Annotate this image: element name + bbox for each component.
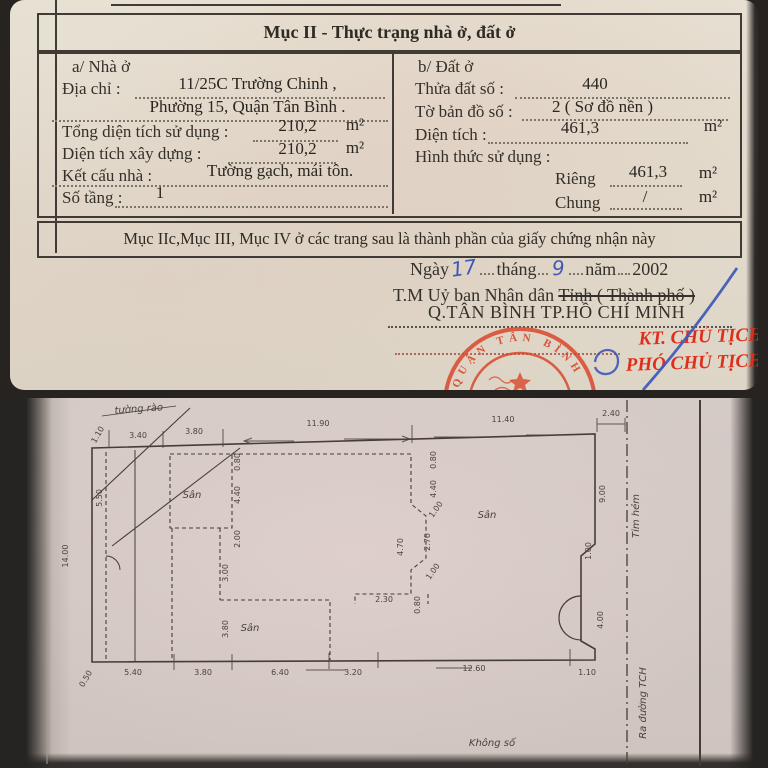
room-b-outline: [172, 528, 330, 660]
site-plan-photo: 1.10 3.40 3.80 11.90 11.40 2.40 0.50 5.4…: [6, 398, 762, 768]
dotted-line: [480, 261, 494, 275]
total-area-label: Tổng diện tích sử dụng :: [62, 122, 228, 142]
private-unit: m²: [693, 163, 723, 183]
dim-inner-4: 3.80: [221, 620, 230, 638]
site-plan-drawing: 1.10 3.40 3.80 11.90 11.40 2.40 0.50 5.4…: [6, 398, 762, 768]
use-form-label: Hình thức sử dụng :: [415, 147, 551, 167]
dim-top-4: 11.40: [492, 415, 515, 424]
dim-inner-8: 4.70: [396, 538, 405, 556]
address-label: Địa chỉ :: [62, 79, 121, 99]
road-out-label: Ra đường TCH: [637, 667, 649, 739]
private-label: Riêng: [555, 169, 596, 189]
dotted-line: [488, 140, 688, 144]
dotted-line: [538, 261, 548, 275]
dim-bottom-3: 6.40: [271, 668, 289, 677]
signature-stroke: [643, 268, 737, 390]
dotted-line: [610, 206, 682, 210]
floors-label: Số tầng :: [62, 188, 122, 208]
parcel-value: 440: [540, 74, 650, 94]
address-value-2: Phường 15, Quận Tân Bình .: [105, 97, 390, 117]
map-sheet-label: Tờ bản đồ số :: [415, 102, 513, 122]
dim-bottom-5: 12.60: [463, 664, 486, 673]
screenshot-root: Mục II - Thực trạng nhà ở, đất ở a/ Nhà …: [0, 0, 768, 768]
dim-inner-0: 0.80: [233, 453, 242, 471]
gate-swing-arcs: [559, 596, 581, 640]
shared-value: /: [615, 187, 675, 207]
top-frame-line: [111, 4, 561, 6]
dim-inner-7: 1.00: [427, 500, 445, 520]
map-sheet-value: 2 ( Sơ đồ nền ): [505, 97, 700, 117]
day-label: Ngày: [410, 259, 449, 280]
signature-loop: [595, 350, 618, 374]
dim-right-0: 9.00: [598, 485, 607, 503]
built-area-unit: m²: [340, 138, 370, 158]
parcel-geometry: [92, 400, 700, 766]
yard-label-3: Sân: [478, 509, 497, 521]
dotted-line: [52, 183, 388, 187]
dim-left-0: 14.00: [61, 545, 70, 568]
no-number-label: Không số: [469, 736, 517, 749]
dim-inner-3: 3.00: [221, 564, 230, 582]
dim-inner-5: 0.80: [429, 451, 438, 469]
dim-bottom-6: 1.10: [578, 668, 596, 677]
total-area-unit: m²: [340, 115, 370, 135]
land-heading: b/ Đất ở: [418, 57, 473, 77]
address-value-1: 11/25C Trường Chinh ,: [125, 74, 390, 94]
building-outlines: [106, 452, 428, 660]
dimension-ticks: [109, 418, 625, 670]
dim-bottom-1: 5.40: [124, 668, 142, 677]
dim-inner-11: 2.30: [375, 595, 393, 604]
alley-axis-label: Tim hẻm: [630, 494, 642, 538]
dim-top-3: 11.90: [307, 419, 330, 428]
pen-signature: [555, 262, 755, 390]
total-area-value: 210,2: [260, 116, 335, 136]
land-area-label: Diện tích :: [415, 125, 487, 145]
shared-unit: m²: [693, 187, 723, 207]
dim-inner-12: 0.80: [413, 596, 422, 614]
dim-top-5: 2.40: [602, 409, 620, 418]
dim-left-1: 5.50: [95, 489, 104, 507]
house-outline: [232, 454, 426, 604]
dim-top-0: 1.10: [89, 425, 106, 445]
yard-label-1: Sân: [183, 489, 202, 501]
fence-label: tường rào: [114, 401, 163, 416]
footer-note-box: Mục IIc,Mục III, Mục IV ở các trang sau …: [37, 221, 742, 258]
certificate-photo: Mục II - Thực trạng nhà ở, đất ở a/ Nhà …: [10, 0, 758, 390]
month-label: tháng: [496, 259, 536, 280]
dim-right-1: 1.00: [584, 542, 593, 560]
dotted-line: [115, 204, 388, 208]
dim-inner-10: 1.00: [424, 562, 442, 582]
dim-top-2: 3.80: [185, 427, 203, 436]
column-divider: [392, 54, 394, 214]
dim-bottom-4: 3.20: [344, 668, 362, 677]
private-value: 461,3: [608, 162, 688, 182]
day-handwritten: 17: [449, 254, 478, 281]
section-title-box: Mục II - Thực trạng nhà ở, đất ở: [37, 13, 742, 52]
shared-label: Chung: [555, 193, 600, 213]
parcel-outline: [92, 434, 595, 662]
dim-top-1: 3.40: [129, 431, 147, 440]
floors-value: 1: [145, 183, 175, 203]
land-area-unit: m²: [698, 116, 728, 136]
house-heading: a/ Nhà ở: [72, 57, 130, 77]
dim-bottom-2: 3.80: [194, 668, 212, 677]
door-swing-arc: [106, 556, 120, 570]
footer-note: Mục IIc,Mục III, Mục IV ở các trang sau …: [39, 223, 740, 255]
dim-inner-6: 4.40: [429, 480, 438, 498]
built-area-value: 210,2: [260, 139, 335, 159]
dim-bottom-0: 0.50: [77, 669, 94, 689]
land-area-value: 461,3: [530, 118, 630, 138]
dim-right-2: 4.00: [596, 611, 605, 629]
parcel-label: Thửa đất số :: [415, 79, 504, 99]
dim-inner-9: 2.70: [423, 533, 432, 551]
section-title: Mục II - Thực trạng nhà ở, đất ở: [39, 15, 740, 50]
dim-inner-1: 4.40: [233, 486, 242, 504]
fence-diagonal-lines: [92, 408, 240, 546]
structure-value: Tường gạch, mái tôn.: [165, 161, 395, 181]
yard-label-2: Sân: [241, 622, 260, 634]
dim-inner-2: 2.00: [233, 530, 242, 548]
